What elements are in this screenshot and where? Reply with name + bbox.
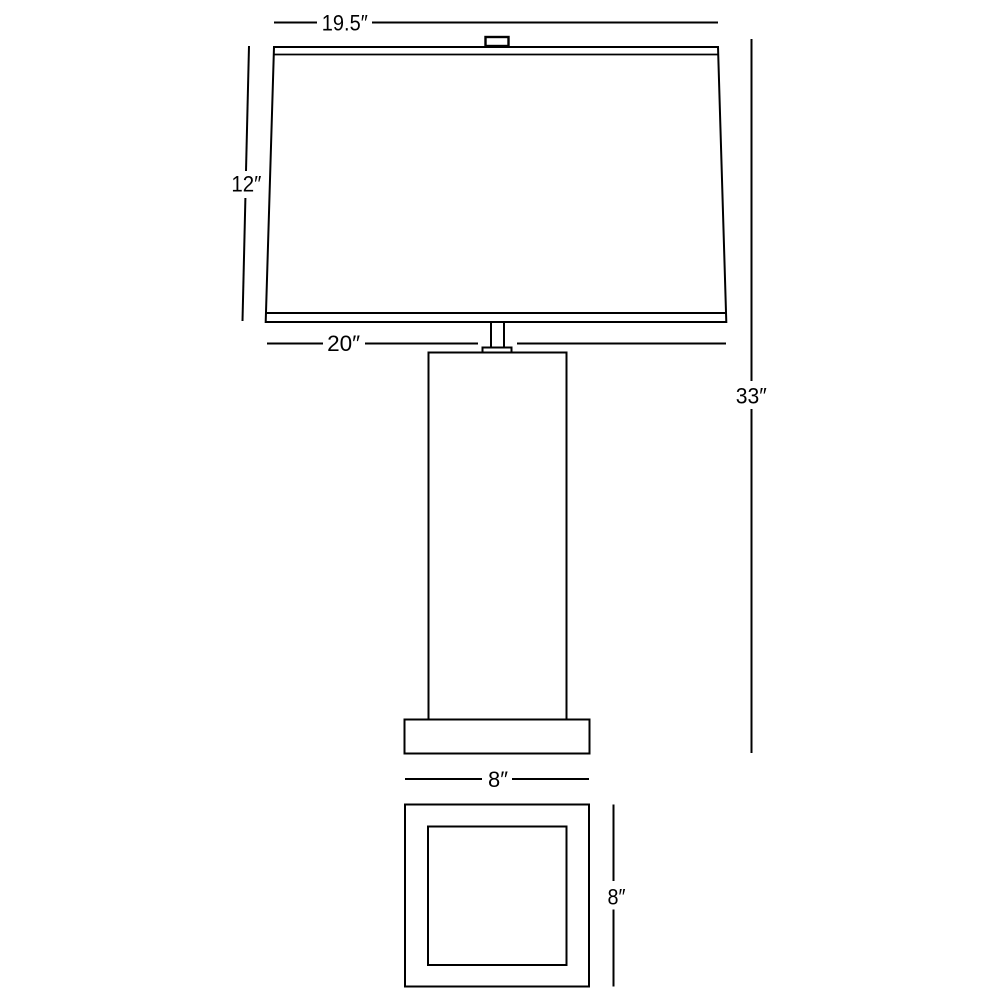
- svg-text:20″: 20″: [327, 331, 360, 356]
- svg-text:33″: 33″: [736, 384, 767, 409]
- svg-text:12″: 12″: [231, 172, 261, 197]
- svg-text:8″: 8″: [608, 885, 626, 910]
- svg-text:19.5″: 19.5″: [322, 11, 368, 36]
- svg-text:8″: 8″: [488, 767, 508, 792]
